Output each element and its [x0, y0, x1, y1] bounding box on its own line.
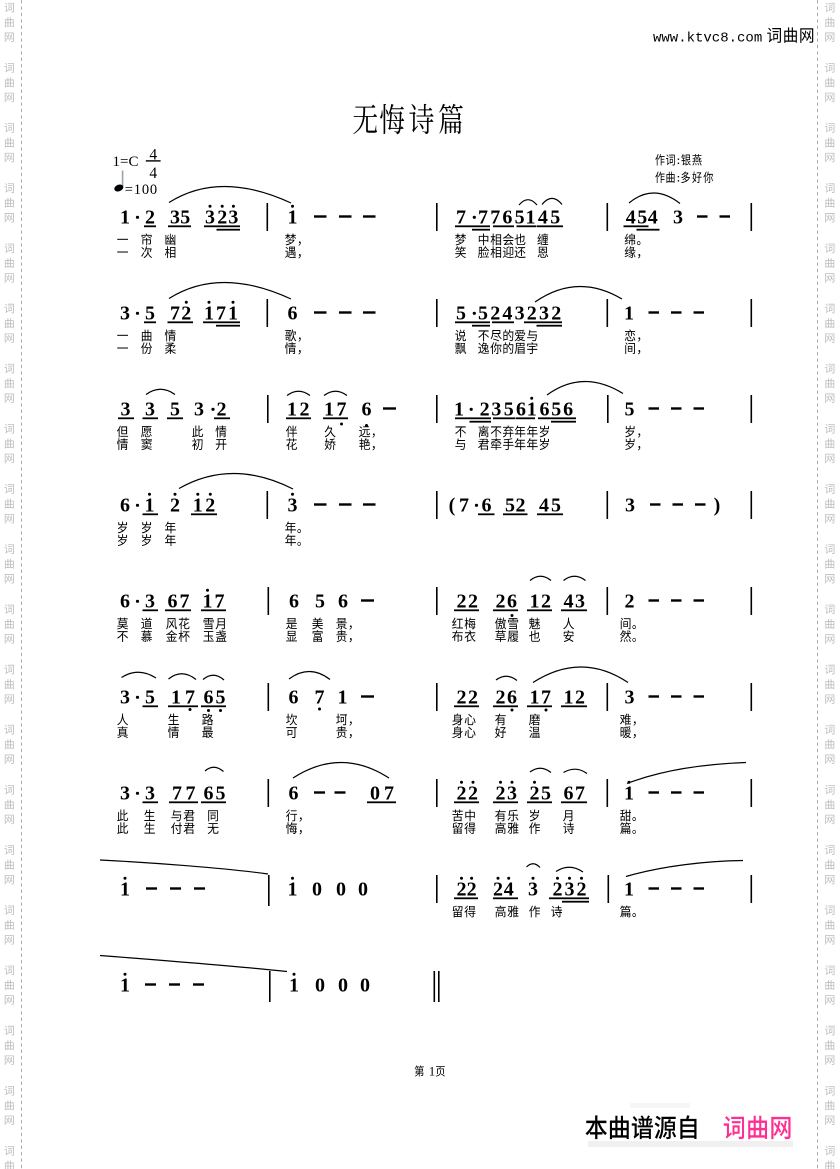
svg-text::: : — [677, 156, 680, 167]
svg-text:www.ktvc8.com: www.ktvc8.com — [653, 31, 762, 47]
svg-text:1=C: 1=C — [113, 154, 139, 170]
svg-text:671: 671 — [289, 686, 348, 708]
svg-text:1: 1 — [429, 1065, 435, 1079]
svg-text:2: 2 — [625, 590, 635, 612]
svg-text:4: 4 — [149, 165, 157, 182]
svg-text:1: 1 — [624, 782, 634, 804]
svg-text:1: 1 — [624, 302, 634, 324]
svg-text:4543: 4543 — [626, 206, 683, 228]
svg-text:656: 656 — [289, 590, 348, 612]
svg-text:1: 1 — [120, 878, 130, 900]
svg-text:=100: =100 — [125, 182, 158, 198]
svg-text:3: 3 — [288, 494, 298, 516]
svg-text::: : — [677, 174, 680, 185]
svg-text:1: 1 — [624, 878, 634, 900]
svg-text:6: 6 — [288, 302, 298, 324]
svg-text:5: 5 — [625, 398, 635, 420]
svg-text:1: 1 — [288, 206, 298, 228]
svg-text:1: 1 — [120, 974, 130, 996]
svg-text:(765245: (765245 — [449, 494, 561, 516]
svg-text:3: 3 — [625, 686, 635, 708]
